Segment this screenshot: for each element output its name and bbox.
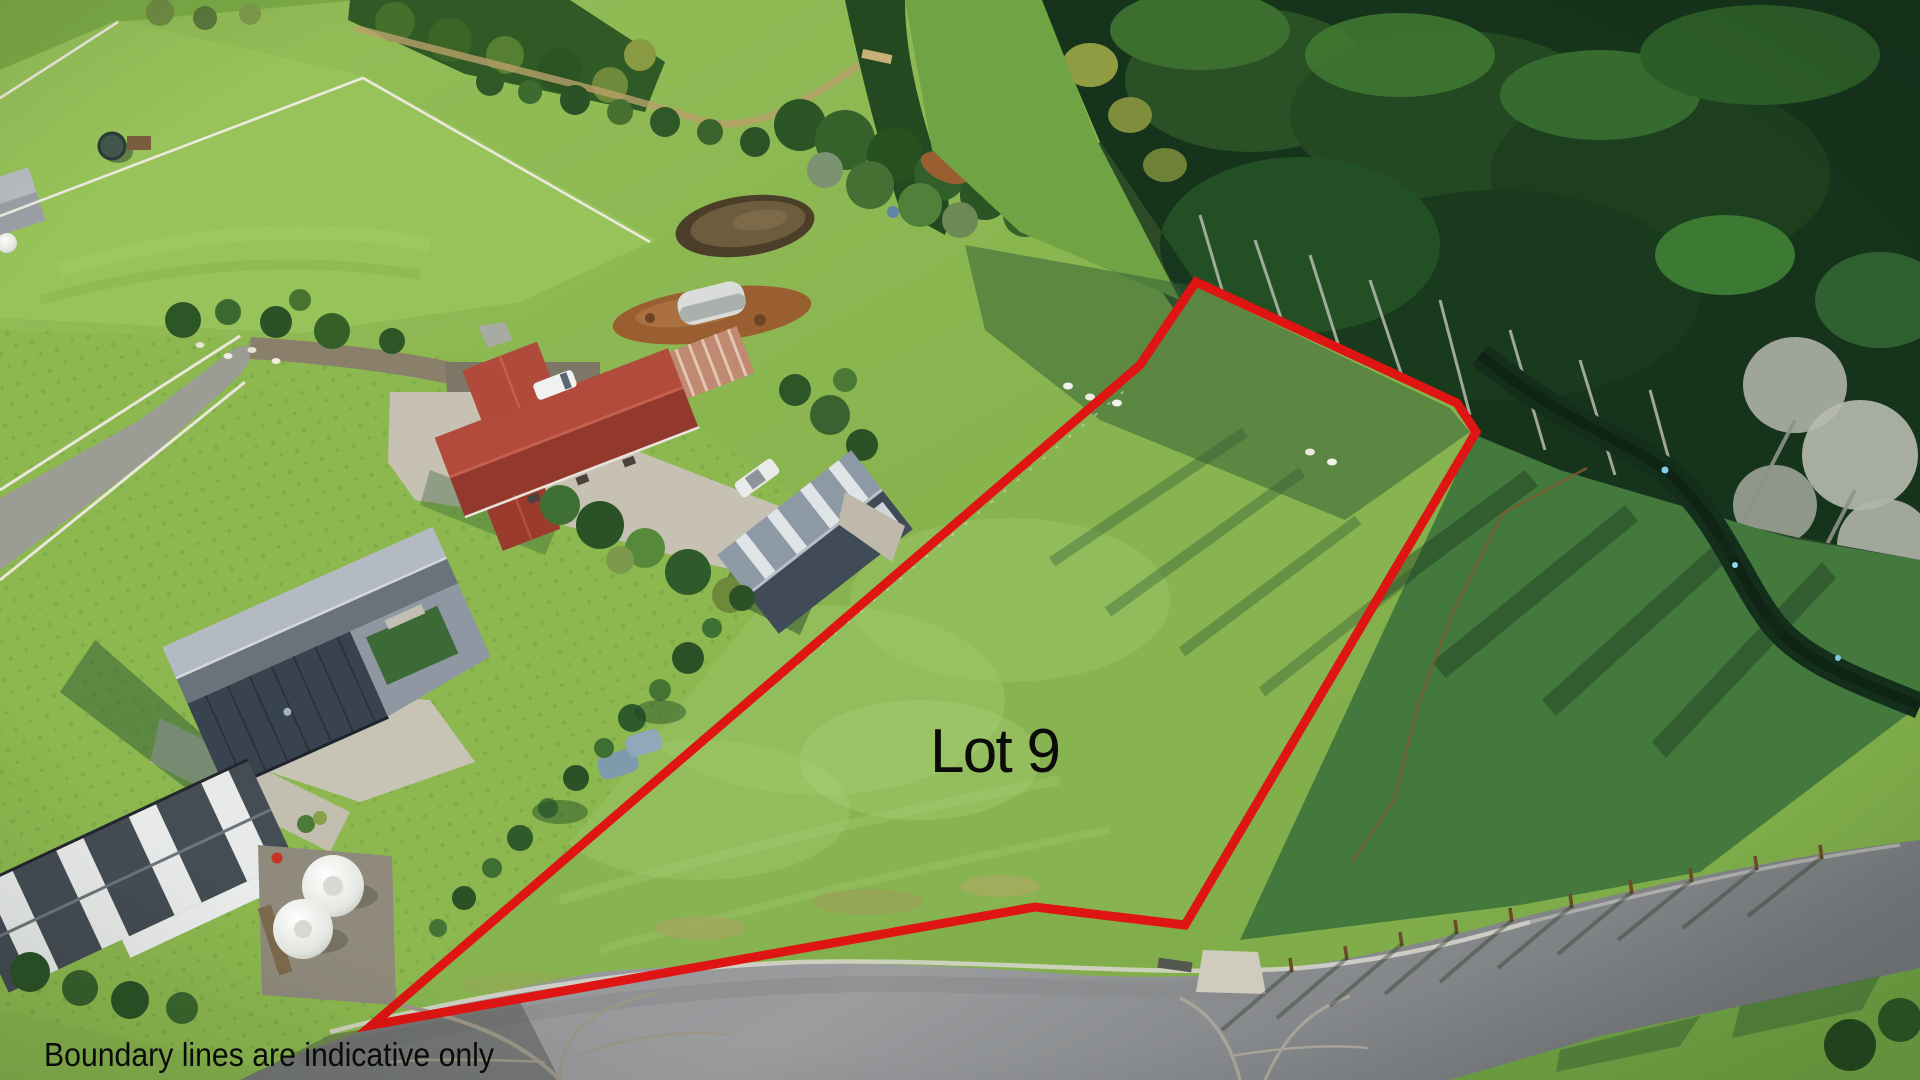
disclaimer-text: Boundary lines are indicative only [44,1036,494,1073]
lot-label: Lot 9 [930,717,1062,786]
aerial-photo-canvas: Lot 9 Boundary lines are indicative only [0,0,1920,1080]
vignette [0,0,1920,1080]
aerial-photo: Lot 9 Boundary lines are indicative only [0,0,1920,1080]
